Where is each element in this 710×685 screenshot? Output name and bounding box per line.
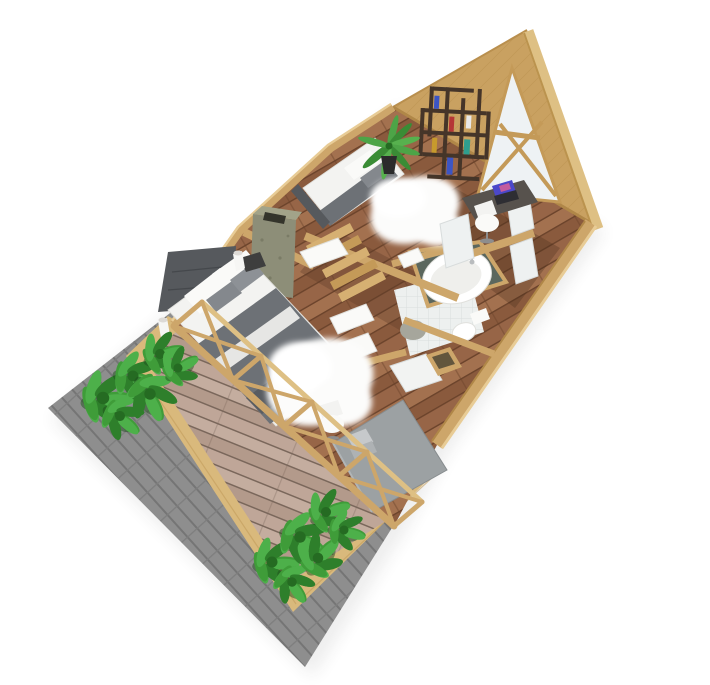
floor-plan-render: [0, 0, 710, 685]
floor-plan-svg: [0, 0, 710, 685]
partition-panel: [440, 214, 474, 268]
